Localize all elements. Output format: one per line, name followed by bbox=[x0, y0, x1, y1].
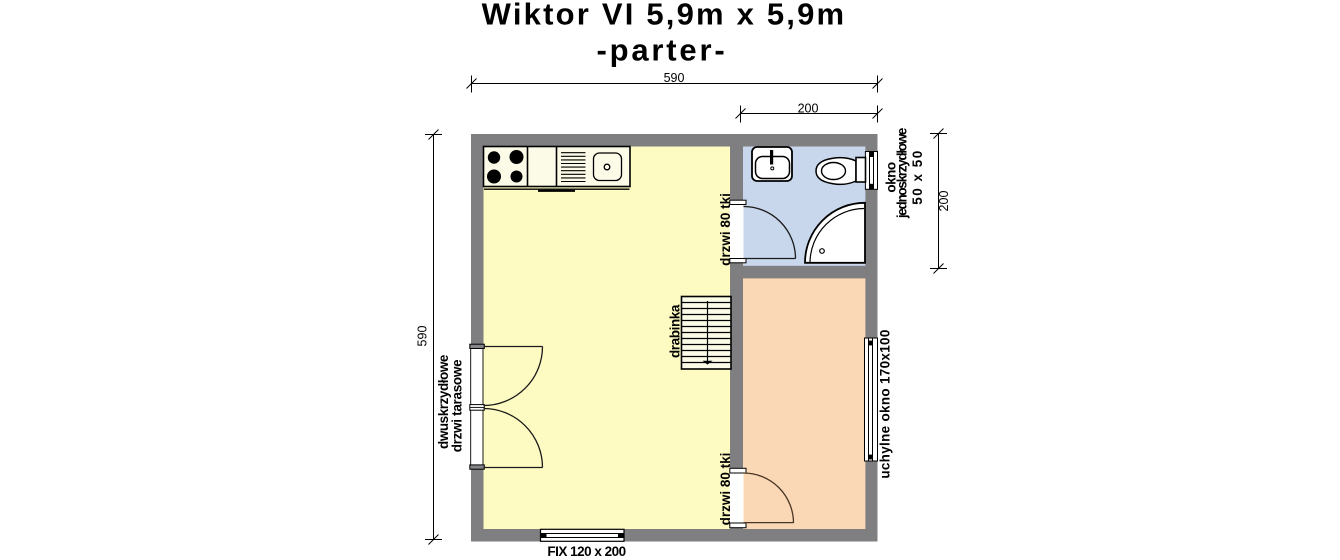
svg-text:drzwi 80 tki: drzwi 80 tki bbox=[718, 193, 733, 266]
svg-text:drzwi 80 tki: drzwi 80 tki bbox=[718, 453, 733, 526]
svg-text:drzwi tarasowe: drzwi tarasowe bbox=[450, 359, 465, 452]
svg-text:200: 200 bbox=[937, 191, 951, 212]
svg-text:-parter-: -parter- bbox=[597, 33, 728, 68]
svg-text:200: 200 bbox=[798, 102, 819, 116]
svg-text:uchylne okno 170x100: uchylne okno 170x100 bbox=[878, 329, 893, 478]
svg-text:jednoskrzydłowe: jednoskrzydłowe bbox=[895, 127, 910, 219]
svg-text:590: 590 bbox=[416, 326, 430, 347]
svg-text:590: 590 bbox=[664, 71, 685, 85]
svg-text:FIX 120 x 200: FIX 120 x 200 bbox=[547, 544, 625, 559]
svg-text:drabinka: drabinka bbox=[668, 304, 683, 358]
svg-text:50 x 50: 50 x 50 bbox=[910, 149, 925, 205]
svg-text:Wiktor VI 5,9m x 5,9m: Wiktor VI 5,9m x 5,9m bbox=[482, 0, 847, 32]
